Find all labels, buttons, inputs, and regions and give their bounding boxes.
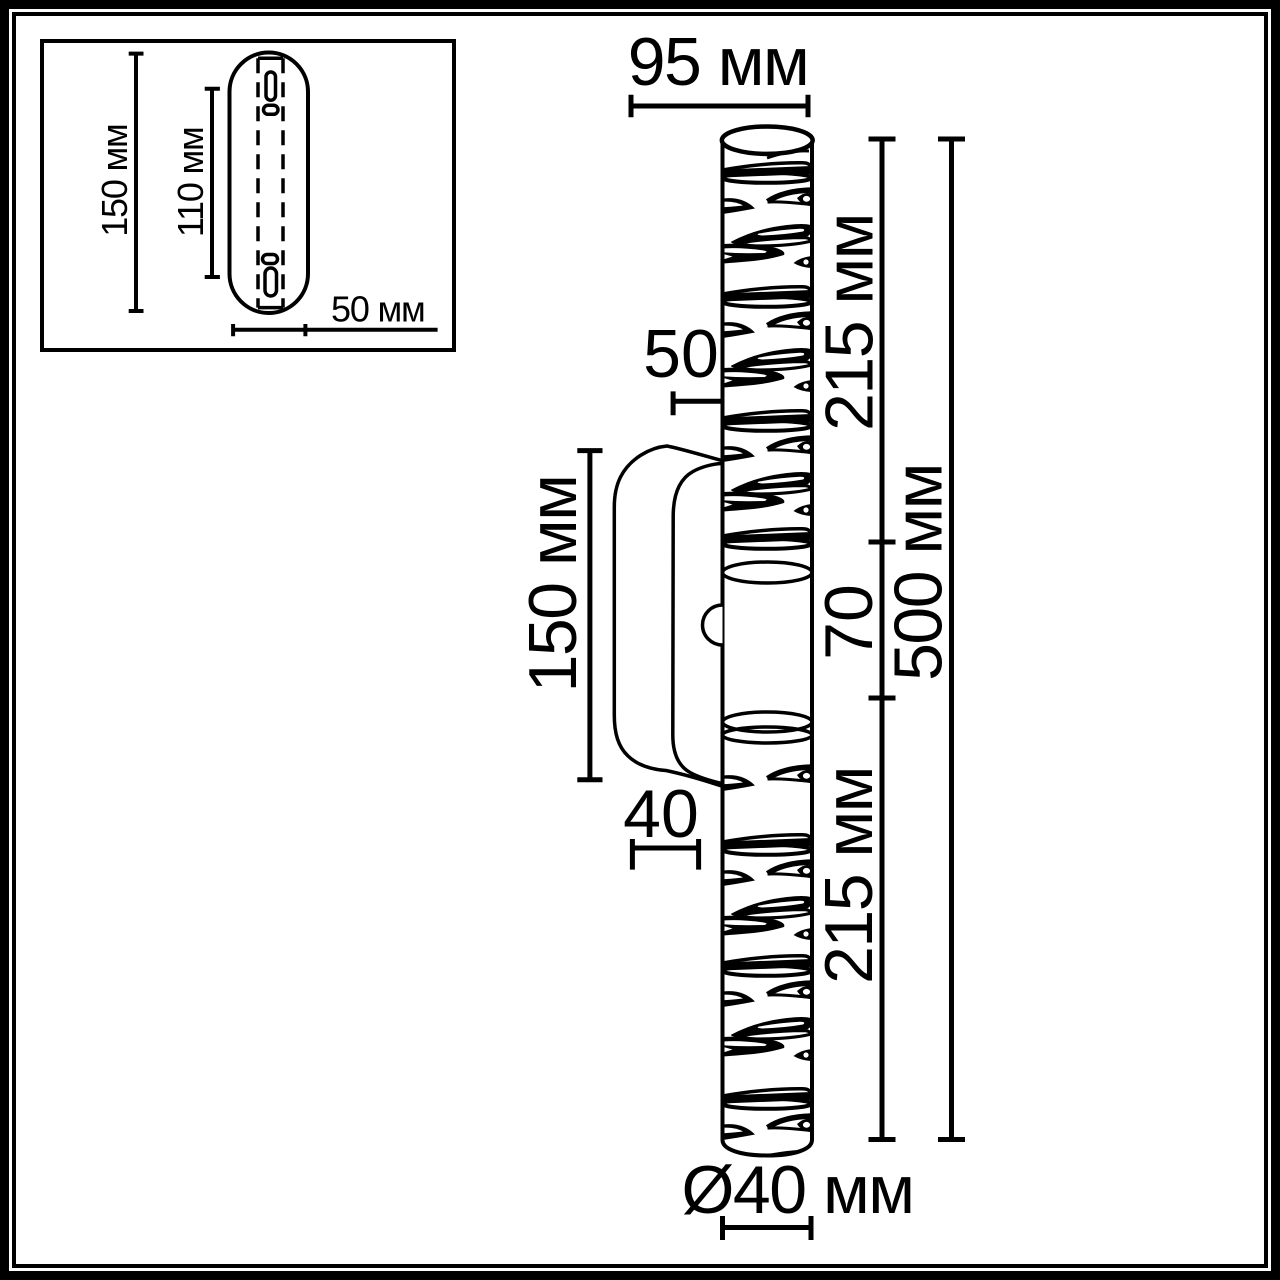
svg-text:70: 70 [811, 584, 887, 660]
svg-text:215 мм: 215 мм [811, 767, 887, 984]
svg-text:50: 50 [643, 316, 719, 392]
svg-text:150 мм: 150 мм [94, 124, 135, 236]
svg-text:110 мм: 110 мм [170, 127, 211, 237]
svg-text:Ø40 мм: Ø40 мм [682, 1152, 914, 1228]
svg-text:50 мм: 50 мм [331, 289, 425, 330]
svg-text:500 мм: 500 мм [881, 464, 957, 681]
svg-text:95 мм: 95 мм [628, 24, 809, 100]
svg-text:150 мм: 150 мм [515, 476, 591, 693]
svg-text:215 мм: 215 мм [812, 214, 888, 431]
